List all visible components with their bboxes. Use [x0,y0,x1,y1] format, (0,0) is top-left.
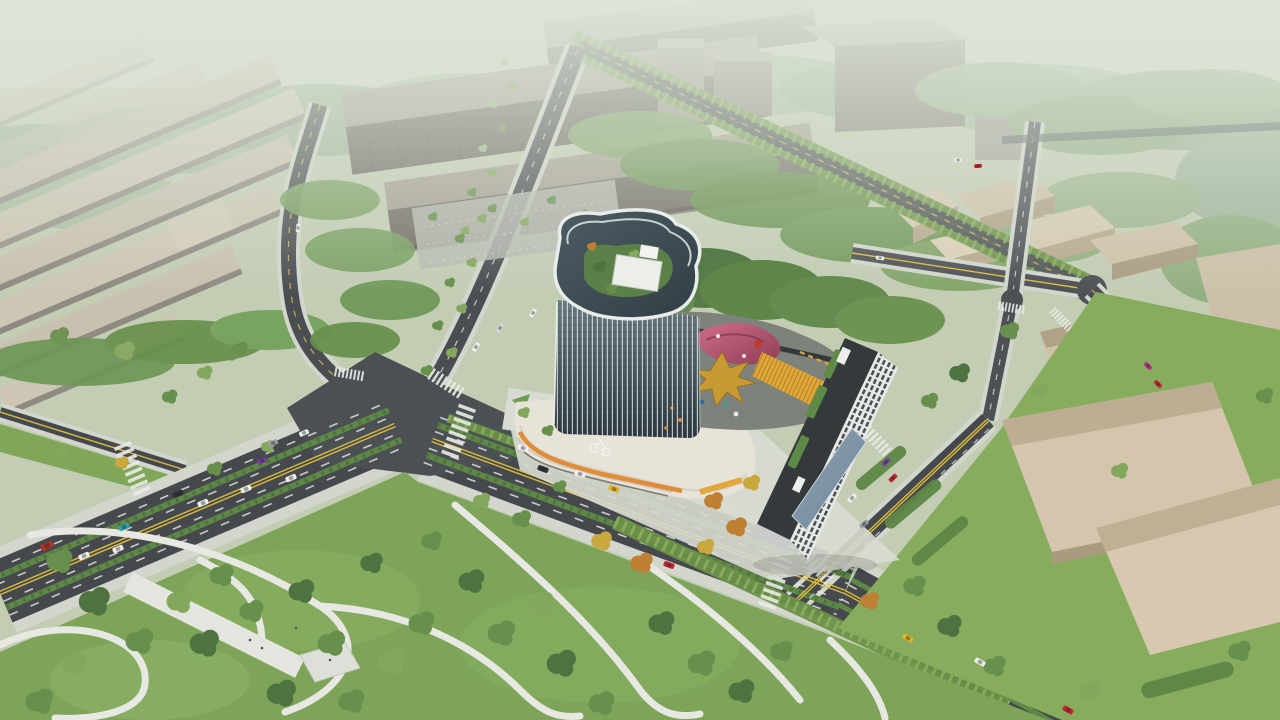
penthouse [612,255,662,292]
aerial-rendering [0,0,1280,720]
glass-tower [554,210,700,438]
